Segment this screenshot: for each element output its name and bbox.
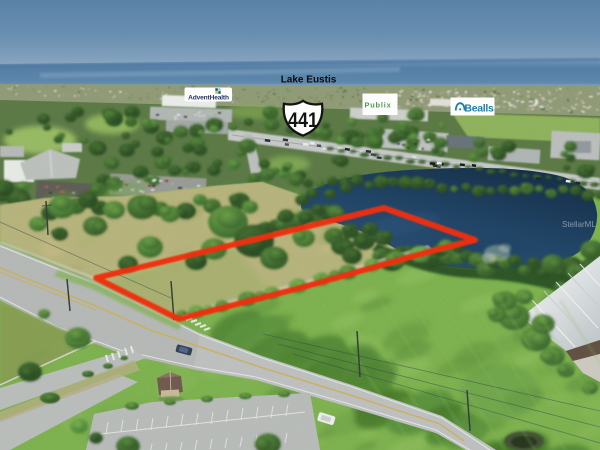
svg-text:StellarML: StellarML: [562, 220, 596, 229]
svg-text:441: 441: [288, 108, 318, 132]
svg-text:Lake Eustis: Lake Eustis: [281, 75, 337, 86]
svg-text:AdventHealth: AdventHealth: [188, 94, 229, 101]
svg-text:Bealls: Bealls: [464, 103, 494, 115]
svg-text:Publix: Publix: [365, 100, 392, 109]
